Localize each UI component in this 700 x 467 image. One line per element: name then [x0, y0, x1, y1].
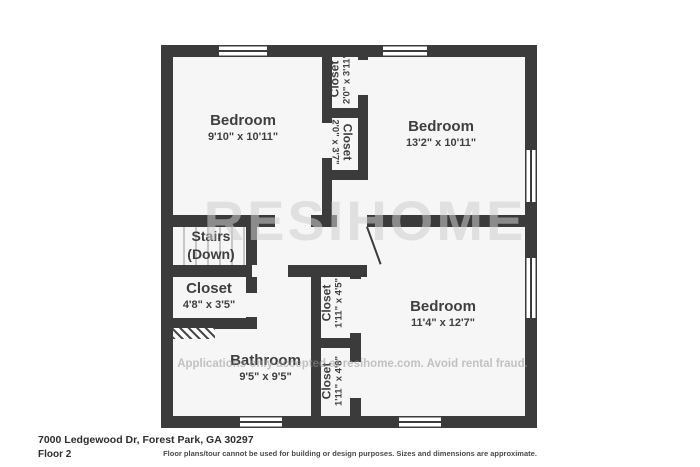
room-name: Closet — [340, 119, 354, 164]
window-bottom-right — [399, 416, 441, 428]
window-bottom-left — [240, 416, 282, 428]
room-dims: 13'2" x 10'11" — [365, 137, 517, 151]
room-name: Closet — [329, 54, 343, 104]
wall-between-top-closets — [322, 108, 368, 118]
wall-closet-column-bottom — [322, 170, 368, 180]
wall-bottom — [161, 416, 537, 428]
room-label-closet-left: Closet 4'8" x 3'5" — [165, 280, 253, 313]
room-dims: 11'4" x 12'7" — [368, 317, 518, 331]
room-dims: 2'0" x 3'11" — [342, 54, 353, 104]
room-dims: 1'11" x 4'5" — [334, 278, 345, 328]
room-label-closet-mid: Closet 1'11" x 4'5" — [321, 278, 346, 328]
room-label-closet-top1: Closet 2'0" x 3'11" — [329, 54, 354, 104]
floor-plan-canvas: Bedroom 9'10" x 10'11" Closet 2'0" x 3'1… — [0, 0, 700, 467]
room-dims: 2'0" x 3'7" — [329, 119, 340, 164]
room-label-bedroom1: Bedroom 9'10" x 10'11" — [163, 112, 323, 145]
watermark-logo-text: RESIHOME — [150, 188, 580, 253]
door-opening-closet-top1 — [358, 60, 368, 95]
window-top-right — [383, 45, 427, 57]
room-label-bedroom3: Bedroom 11'4" x 12'7" — [368, 298, 518, 331]
window-top-left — [219, 45, 267, 57]
door-opening-bathroom — [252, 265, 288, 277]
watermark-warning-text: Applications only accepted at resihome.c… — [170, 358, 535, 370]
room-label-bedroom2: Bedroom 13'2" x 10'11" — [365, 118, 517, 151]
disclaimer-text: Floor plans/tour cannot be used for buil… — [0, 449, 700, 458]
address-text: 7000 Ledgewood Dr, Forest Park, GA 30297 — [38, 434, 254, 446]
hatched-opening — [173, 328, 215, 339]
door-opening-closet-mid — [350, 279, 361, 333]
room-dims: 4'8" x 3'5" — [165, 299, 253, 313]
room-name: Closet — [321, 278, 335, 328]
window-right-lower — [525, 258, 537, 318]
room-label-closet-top2: Closet 2'0" x 3'7" — [329, 119, 354, 164]
wall-between-bottom-closets — [311, 338, 361, 348]
room-name: Closet — [165, 280, 253, 299]
room-name: Bedroom — [365, 118, 517, 137]
room-dims: 9'10" x 10'11" — [163, 131, 323, 145]
room-name: Bedroom — [163, 112, 323, 131]
room-name: Bedroom — [368, 298, 518, 317]
